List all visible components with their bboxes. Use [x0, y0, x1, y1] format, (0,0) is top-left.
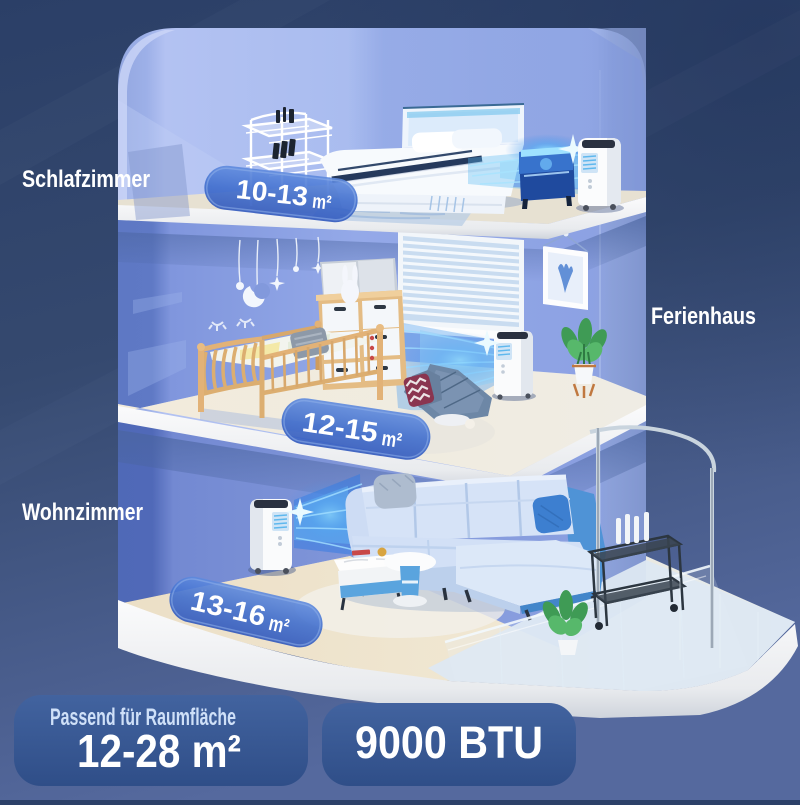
svg-text:Schlafzimmer: Schlafzimmer: [22, 166, 150, 193]
svg-text:12-28 m²: 12-28 m²: [77, 725, 241, 777]
svg-text:Ferienhaus: Ferienhaus: [651, 303, 756, 330]
svg-text:m²: m²: [380, 427, 403, 453]
svg-text:9000 BTU: 9000 BTU: [355, 717, 543, 768]
svg-text:m²: m²: [311, 191, 333, 215]
svg-text:Wohnzimmer: Wohnzimmer: [22, 499, 143, 526]
